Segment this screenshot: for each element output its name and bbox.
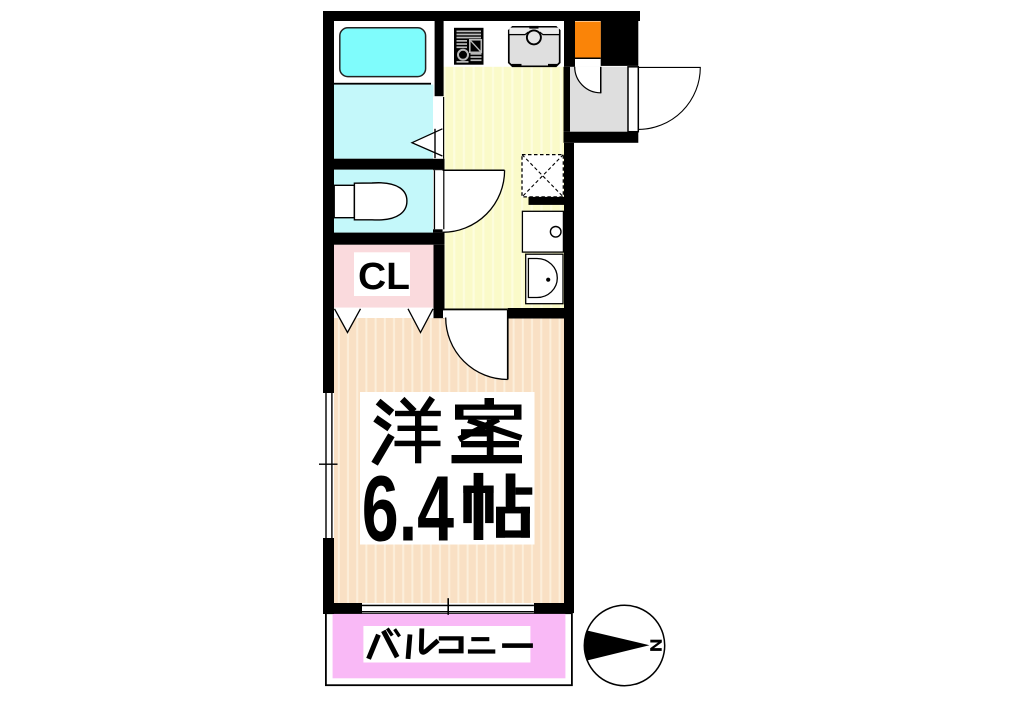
svg-text:6.4: 6.4	[362, 457, 454, 561]
svg-text:CL: CL	[358, 256, 410, 298]
